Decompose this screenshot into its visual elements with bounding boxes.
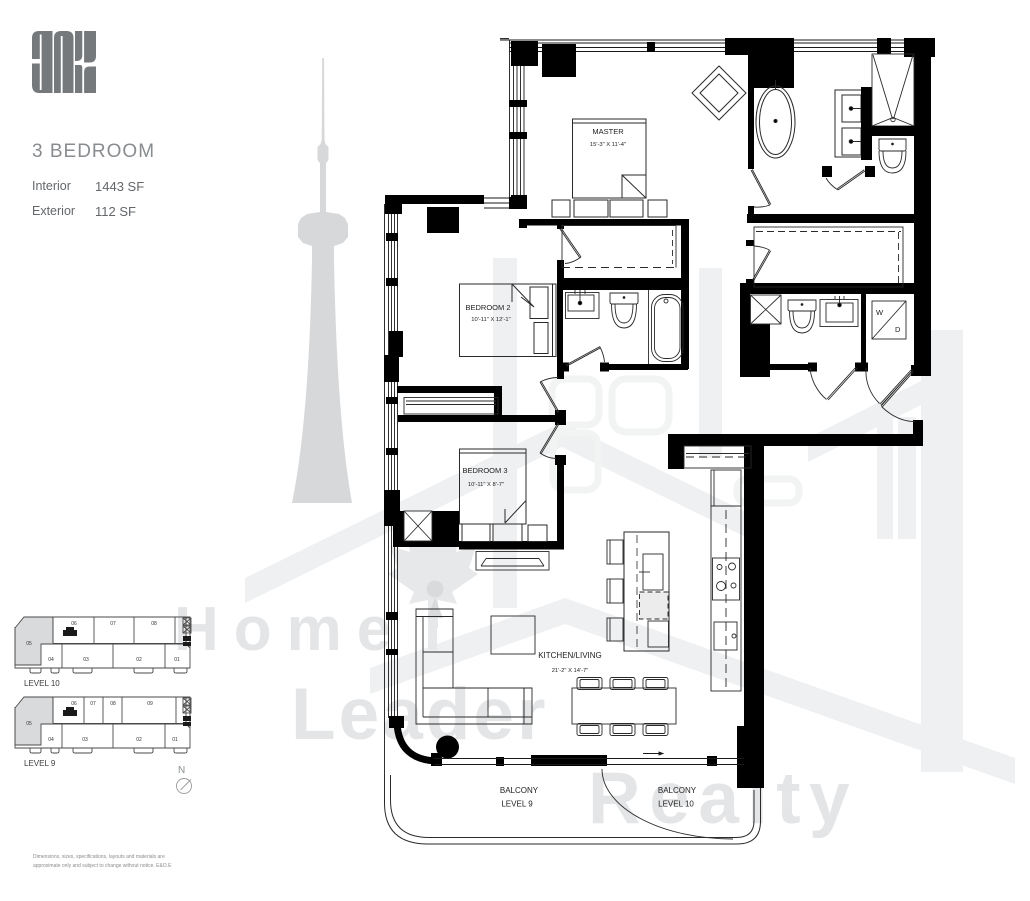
svg-text:D: D: [895, 325, 901, 334]
svg-text:07: 07: [90, 701, 96, 707]
svg-text:BALCONY: BALCONY: [500, 786, 539, 795]
svg-text:LEVEL 9: LEVEL 9: [501, 800, 533, 809]
svg-text:W: W: [876, 308, 884, 317]
svg-text:1443 SF: 1443 SF: [95, 179, 144, 194]
svg-text:10'-11" X 8'-7": 10'-11" X 8'-7": [468, 482, 504, 488]
svg-text:BALCONY: BALCONY: [658, 786, 697, 795]
svg-text:approximate only and subject t: approximate only and subject to change w…: [33, 863, 172, 869]
svg-text:10'-11" X 12'-1": 10'-11" X 12'-1": [471, 317, 510, 323]
svg-text:02: 02: [136, 657, 142, 663]
svg-text:05: 05: [26, 721, 32, 727]
svg-text:21'-2" X 14'-7": 21'-2" X 14'-7": [552, 668, 589, 674]
svg-text:3 BEDROOM: 3 BEDROOM: [32, 141, 155, 162]
svg-text:08: 08: [151, 621, 157, 627]
svg-text:04: 04: [48, 657, 54, 663]
svg-text:06: 06: [71, 701, 77, 707]
svg-text:Interior: Interior: [32, 179, 71, 193]
svg-text:BEDROOM 2: BEDROOM 2: [465, 303, 510, 312]
svg-text:N: N: [178, 765, 185, 776]
svg-text:BEDROOM 3: BEDROOM 3: [462, 466, 507, 475]
svg-text:05: 05: [26, 641, 32, 647]
svg-text:Realty: Realty: [588, 758, 858, 839]
svg-text:03: 03: [82, 737, 88, 743]
svg-text:02: 02: [136, 737, 142, 743]
svg-text:Leader: Leader: [291, 674, 548, 755]
svg-text:15'-3" X 11'-4": 15'-3" X 11'-4": [590, 142, 626, 148]
svg-text:MASTER: MASTER: [592, 127, 624, 136]
svg-text:Exterior: Exterior: [32, 204, 75, 218]
svg-text:04: 04: [48, 737, 54, 743]
svg-text:09: 09: [147, 701, 153, 707]
svg-text:Home: Home: [174, 595, 406, 664]
svg-text:03: 03: [83, 657, 89, 663]
svg-text:06: 06: [71, 621, 77, 627]
svg-text:KITCHEN/LIVING: KITCHEN/LIVING: [538, 651, 602, 660]
svg-text:07: 07: [110, 621, 116, 627]
svg-text:08: 08: [110, 701, 116, 707]
svg-text:01: 01: [172, 737, 178, 743]
svg-text:LEVEL 10: LEVEL 10: [658, 800, 694, 809]
svg-text:Dimensions, sizes, specificati: Dimensions, sizes, specifications, layou…: [33, 854, 165, 860]
svg-text:LEVEL 10: LEVEL 10: [24, 679, 60, 688]
svg-text:01: 01: [174, 657, 180, 663]
svg-text:112 SF: 112 SF: [95, 204, 136, 219]
svg-text:LEVEL 9: LEVEL 9: [24, 759, 56, 768]
